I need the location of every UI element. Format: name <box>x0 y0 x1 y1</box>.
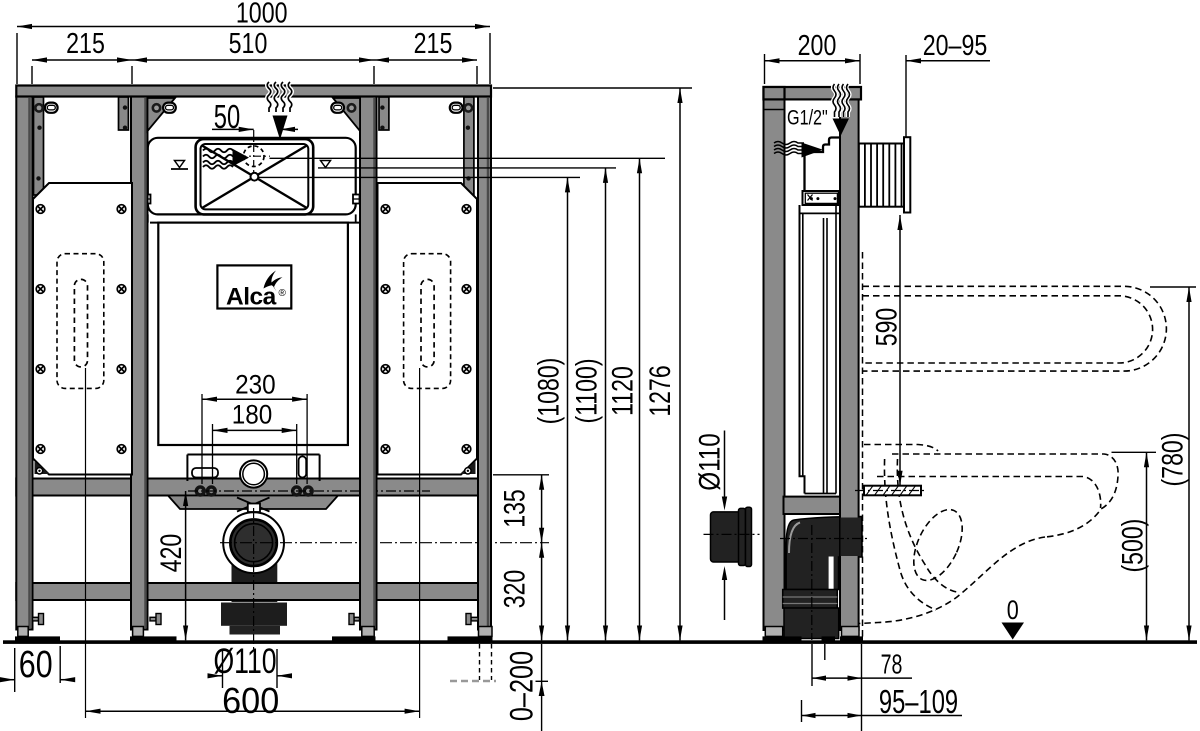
svg-text:320: 320 <box>498 570 532 609</box>
svg-text:Ø110: Ø110 <box>692 433 726 491</box>
svg-text:590: 590 <box>870 308 904 347</box>
svg-text:78: 78 <box>881 649 903 680</box>
svg-text:50: 50 <box>214 99 240 136</box>
svg-text:Alca: Alca <box>226 284 277 311</box>
svg-text:(1100): (1100) <box>570 358 604 423</box>
svg-text:215: 215 <box>66 26 105 59</box>
svg-text:®: ® <box>279 288 287 299</box>
svg-text:60: 60 <box>19 644 53 686</box>
svg-text:200: 200 <box>798 28 837 61</box>
svg-text:(500): (500) <box>1116 519 1150 573</box>
svg-text:600: 600 <box>222 681 279 721</box>
svg-text:1000: 1000 <box>236 0 288 29</box>
svg-text:(780): (780) <box>1156 433 1190 487</box>
svg-text:(1080): (1080) <box>532 358 566 425</box>
svg-text:1120: 1120 <box>606 366 640 416</box>
svg-text:0–200: 0–200 <box>505 651 541 721</box>
svg-text:420: 420 <box>154 534 188 573</box>
svg-text:180: 180 <box>232 400 273 429</box>
svg-text:510: 510 <box>229 26 268 59</box>
svg-text:0: 0 <box>1007 596 1019 626</box>
svg-text:20–95: 20–95 <box>923 28 987 61</box>
svg-text:215: 215 <box>414 26 453 59</box>
svg-text:135: 135 <box>498 489 532 528</box>
svg-text:1276: 1276 <box>643 365 677 416</box>
svg-text:230: 230 <box>235 370 276 399</box>
svg-text:G1/2": G1/2" <box>787 105 828 129</box>
